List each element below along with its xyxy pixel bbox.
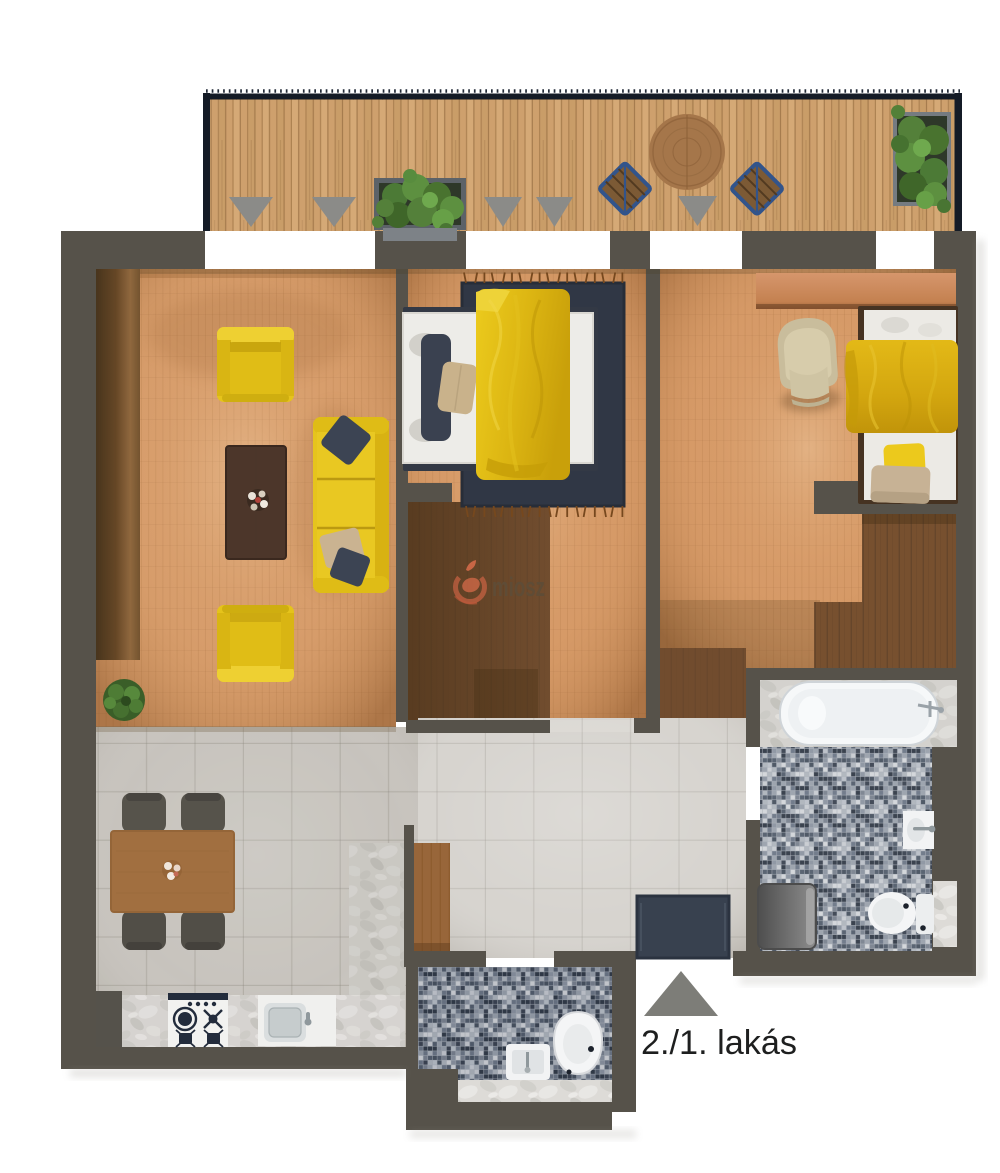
svg-text:miosz: miosz xyxy=(492,572,545,602)
svg-text:2./1. lakás: 2./1. lakás xyxy=(641,1024,797,1062)
